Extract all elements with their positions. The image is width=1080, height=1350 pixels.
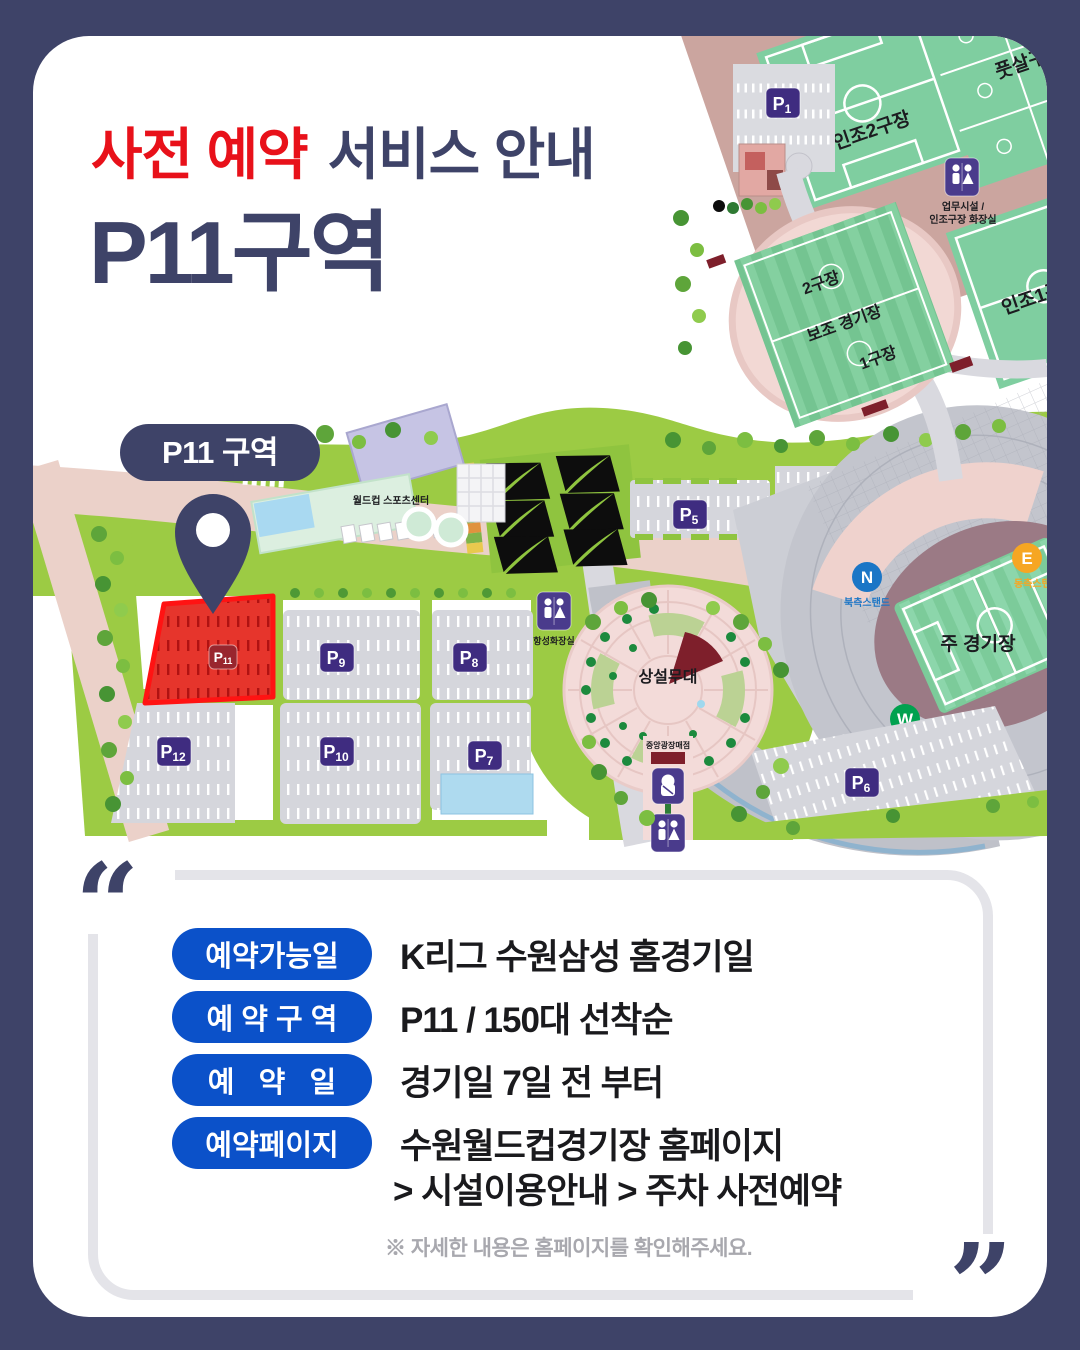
title-highlight: 사전 예약 <box>91 110 308 191</box>
value-available-date: K리그 수원삼성 홈경기일 <box>400 928 754 980</box>
building-blue <box>441 774 533 814</box>
main-card: 월드컵 스포츠센터 <box>33 36 1047 1317</box>
label-pill-available-date: 예약가능일 <box>172 928 372 980</box>
quote-close-icon: ” <box>913 1234 1013 1314</box>
label-pill-reservation-page: 예약페이지 <box>172 1117 372 1169</box>
value-zone: P11 / 150대 선착순 <box>400 991 672 1043</box>
snack-bar-label: 중앙광장매점 <box>646 740 690 750</box>
north-stand-letter: N <box>861 568 873 587</box>
value-reservation-date: 경기일 7일 전 부터 <box>400 1054 663 1106</box>
quote-open-icon: “ <box>75 854 175 934</box>
main-stadium-label: 주 경기장 <box>940 633 1016 655</box>
east-stand-letter: E <box>1021 549 1032 568</box>
east-stand-label: 동측스탠드 <box>1014 577 1047 590</box>
footnote: ※ 자세한 내용은 홈페이지를 확인해주세요. <box>385 1232 752 1262</box>
north-stand-label: 북측스탠드 <box>844 596 890 609</box>
label-pill-zone: 예 약 구 역 <box>172 991 372 1043</box>
office-label-1: 업무시설 / <box>942 200 985 213</box>
value-reservation-path: > 시설이용안내 > 주차 사전예약 <box>393 1162 841 1214</box>
stage-label: 상설무대 <box>639 668 698 686</box>
page-title: 사전 예약서비스 안내 <box>91 110 595 191</box>
zone-title: P11구역 <box>89 182 388 309</box>
p11-callout: P11 구역 <box>120 424 320 481</box>
title-rest: 서비스 안내 <box>328 110 595 191</box>
restroom-icon-south <box>651 814 685 852</box>
restroom-west-label: 항성화장실 <box>533 635 574 646</box>
poster-canvas: 월드컵 스포츠센터 <box>0 0 1080 1350</box>
label-pill-reservation-date: 예 약 일 <box>172 1054 372 1106</box>
office-label-2: 인조구장 화장실 <box>929 213 996 226</box>
snack-bar-icon <box>652 768 684 804</box>
sports-center-label: 월드컵 스포츠센터 <box>353 494 429 507</box>
restroom-icon-north <box>945 158 979 196</box>
p11-callout-label: P11 구역 <box>162 435 278 470</box>
restroom-west: 항성화장실 <box>533 592 574 646</box>
